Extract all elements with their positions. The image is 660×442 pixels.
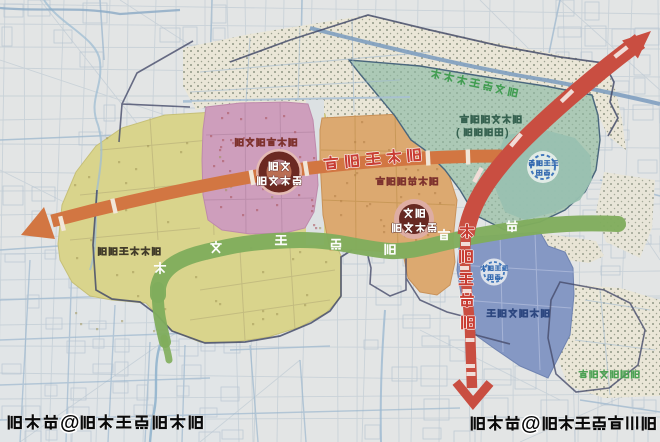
svg-text:@: @ [521,413,541,435]
svg-text:@: @ [60,412,80,434]
